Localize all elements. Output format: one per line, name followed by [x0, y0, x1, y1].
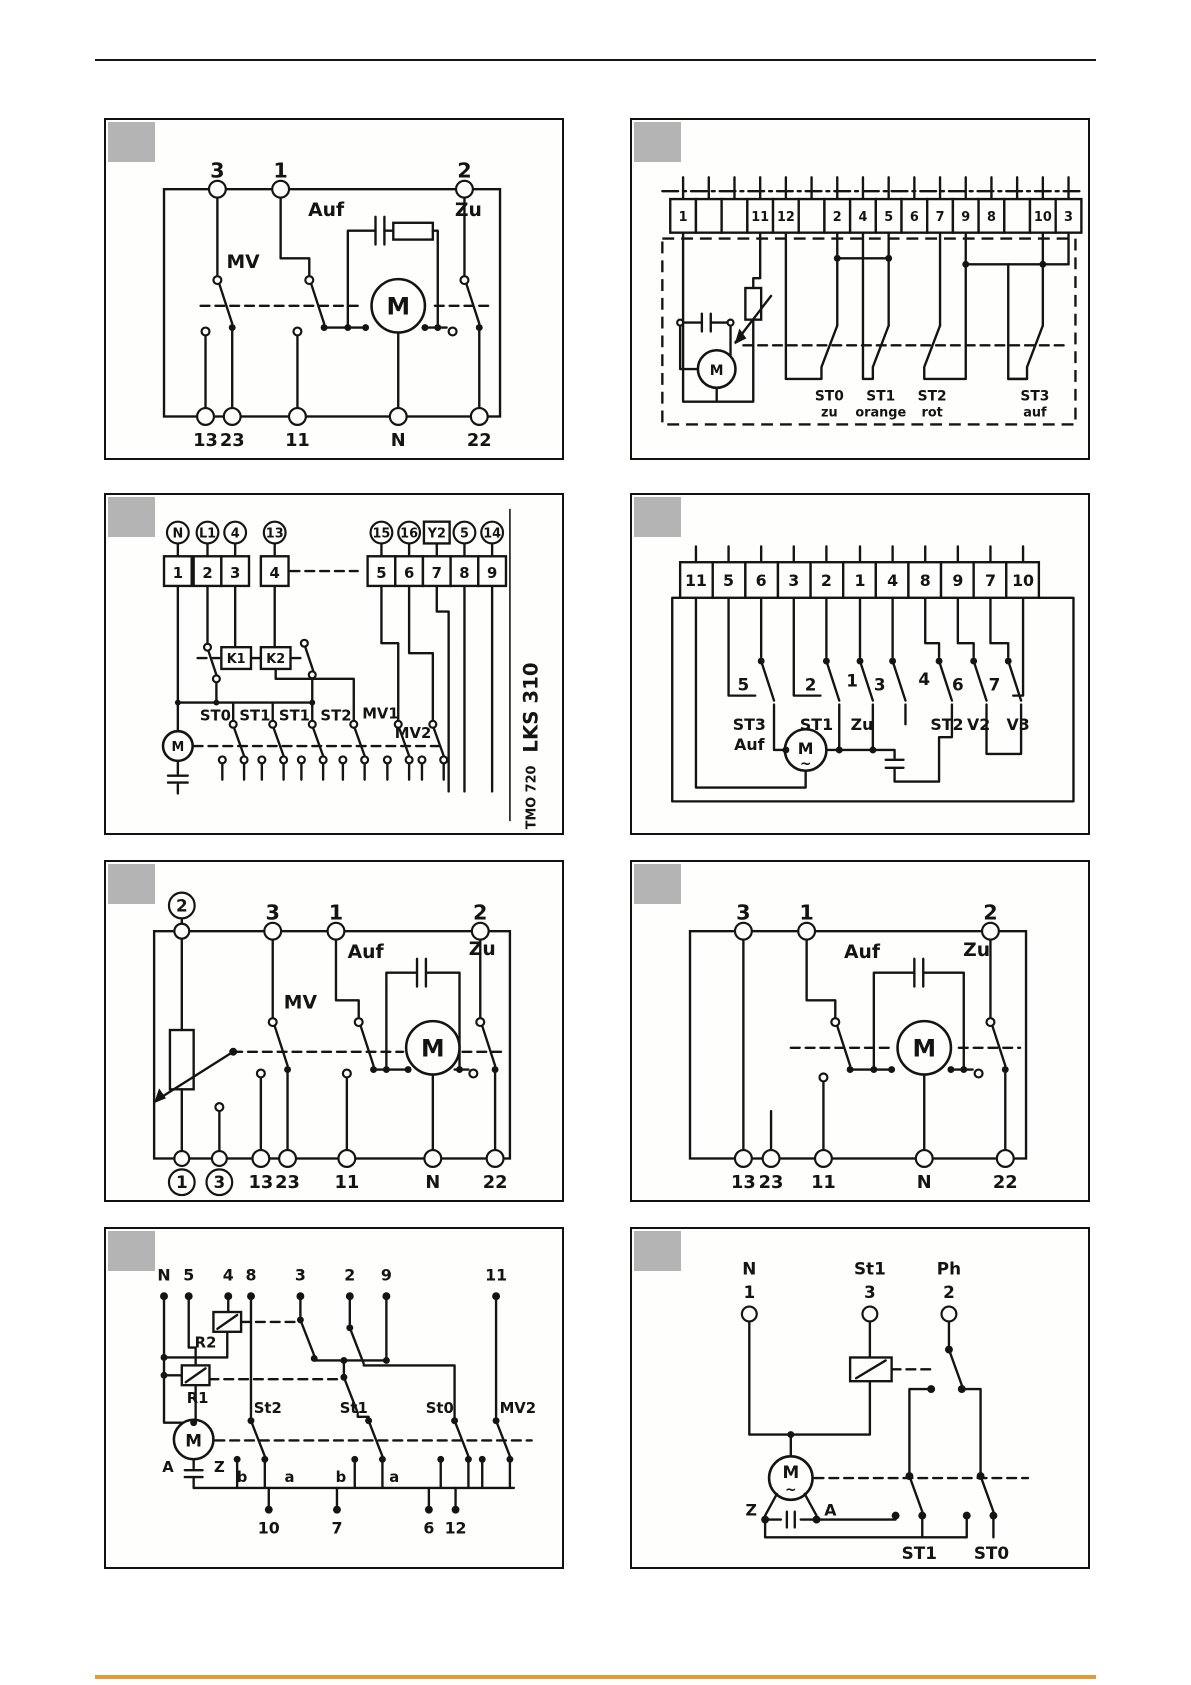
- term-name: St1: [854, 1258, 886, 1278]
- switch-label: MV: [284, 992, 318, 1013]
- cell-label: 3: [1064, 210, 1073, 225]
- cell-label: 6: [910, 210, 919, 225]
- switch-label: St1: [340, 1400, 368, 1417]
- side-label: LKS 310: [520, 662, 543, 752]
- switch-label: V3: [1007, 715, 1030, 734]
- switch-label: St0: [426, 1400, 454, 1417]
- relay-label: K1: [227, 652, 246, 667]
- term-label: 1: [176, 1172, 188, 1192]
- term-label: 3: [736, 900, 750, 924]
- cell-label: 4: [270, 565, 280, 582]
- term-label: N: [425, 1172, 440, 1193]
- cell-label: 9: [487, 565, 497, 582]
- wiring-diagram-7: N 5 4 8 3 2 9 11 R2 R1 St2 St1 St0 MV2 b…: [106, 1229, 562, 1567]
- contact-label: b: [336, 1469, 347, 1486]
- cell-label: 3: [788, 571, 799, 590]
- term-label: 16: [400, 526, 418, 541]
- term-label: 5: [460, 526, 469, 541]
- direction-label: Auf: [844, 942, 881, 963]
- wiring-diagram-1: 3 1 2 MV Auf Zu M 13 23 11 N 22: [106, 120, 562, 458]
- term-label: 3: [295, 1265, 306, 1284]
- term-label: 3: [265, 900, 279, 924]
- term-label: 23: [220, 430, 245, 451]
- motor-terminal-label: Z: [746, 1501, 757, 1520]
- motor-label: M: [710, 363, 724, 379]
- term-label: 4: [231, 526, 240, 541]
- term-label: 12: [445, 1518, 467, 1537]
- switch-number: 4: [918, 669, 930, 689]
- term-label: 5: [183, 1265, 194, 1284]
- side-label: TMO 720: [525, 766, 540, 830]
- motor-label: M: [171, 740, 184, 755]
- term-label: 1: [273, 158, 287, 182]
- contact-label: a: [285, 1469, 295, 1486]
- cell-label: 12: [777, 210, 795, 225]
- switch-label: ST0: [200, 707, 231, 724]
- switch-number: 2: [805, 675, 817, 695]
- motor-label: M: [782, 1462, 799, 1482]
- cell-label: 10: [1034, 210, 1052, 225]
- contact-label: a: [389, 1469, 399, 1486]
- switch-label: MV: [226, 252, 260, 273]
- cell-label: 11: [685, 571, 707, 590]
- switch-label: MV2: [500, 1400, 537, 1417]
- diagram-panel-5: 2 3 1 2 MV Auf Zu M 1 3 13 23 11 N 22: [104, 860, 564, 1202]
- term-label: 4: [223, 1265, 234, 1284]
- cell-label: 9: [952, 571, 963, 590]
- diagram-panel-6: 3 1 2 Auf Zu M 13 23 11 N 22: [630, 860, 1090, 1202]
- term-number: 2: [943, 1282, 955, 1302]
- switch-color-label: rot: [922, 405, 943, 420]
- switch-label: ST1: [239, 707, 270, 724]
- motor-label: M: [185, 1430, 202, 1450]
- motor-wave: ~: [800, 756, 812, 772]
- switch-label: MV2: [395, 725, 432, 742]
- motor-terminal-label: A: [824, 1501, 837, 1520]
- switch-number: 6: [952, 675, 964, 695]
- direction-label: Zu: [455, 200, 482, 221]
- switch-label: ST1: [800, 715, 833, 734]
- term-label: 13: [193, 430, 218, 451]
- cell-label: 8: [920, 571, 931, 590]
- wiring-diagram-8: N 1 St1 3 Ph 2 M ~ Z A ST1 ST0: [632, 1229, 1088, 1567]
- motor-label: M: [421, 1035, 445, 1063]
- term-label: 2: [457, 158, 471, 182]
- cell-label: 6: [404, 565, 414, 582]
- term-label: 22: [993, 1172, 1018, 1193]
- diagram-panel-1: 3 1 2 MV Auf Zu M 13 23 11 N 22: [104, 118, 564, 460]
- term-label: 3: [214, 1172, 226, 1192]
- cell-label: 7: [432, 565, 442, 582]
- cell-label: 4: [887, 571, 898, 590]
- switch-number: 1: [846, 671, 858, 691]
- wiring-diagram-4: 11 5 6 3 2 1 4 8 9 7 10 5 2 1 3 4 6 7 ST…: [632, 495, 1088, 833]
- switch-label: ST1: [279, 707, 310, 724]
- switch-color-label: auf: [1023, 405, 1047, 420]
- cell-label: 3: [230, 565, 240, 582]
- direction-label: Zu: [469, 939, 496, 960]
- cell-label: 8: [987, 210, 996, 225]
- cell-label: 2: [833, 210, 842, 225]
- switch-color-label: zu: [821, 405, 838, 420]
- term-label: N: [391, 430, 406, 451]
- switch-label: ST1: [902, 1543, 937, 1563]
- switch-number: 7: [989, 675, 1001, 695]
- direction-label: Zu: [963, 940, 990, 961]
- term-number: 1: [743, 1282, 755, 1302]
- term-label: 22: [467, 430, 492, 451]
- term-label: N: [157, 1265, 170, 1284]
- cell-label: 1: [679, 210, 688, 225]
- cell-label: 2: [821, 571, 832, 590]
- cell-label: 7: [936, 210, 945, 225]
- direction-label: Auf: [308, 200, 345, 221]
- term-label: 11: [485, 1265, 507, 1284]
- term-label: 11: [334, 1172, 359, 1193]
- cell-label: 5: [723, 571, 734, 590]
- motor-label: M: [386, 293, 410, 321]
- term-label: 1: [329, 900, 343, 924]
- motor-label: M: [912, 1035, 936, 1063]
- term-label: 8: [245, 1265, 256, 1284]
- term-label: 2: [983, 900, 997, 924]
- term-label: N: [172, 526, 183, 541]
- term-label: 23: [759, 1172, 784, 1193]
- cell-label: 5: [884, 210, 893, 225]
- cell-label: 1: [855, 571, 866, 590]
- switch-label: MV1: [362, 705, 399, 722]
- term-label: 2: [473, 900, 487, 924]
- cell-label: 9: [961, 210, 970, 225]
- term-label: L1: [199, 526, 216, 541]
- motor-terminal-label: A: [162, 1459, 174, 1476]
- page-top-rule: [95, 59, 1096, 61]
- relay-label: R2: [195, 1335, 217, 1352]
- term-label: 10: [258, 1518, 280, 1537]
- switch-label: Zu: [851, 715, 874, 734]
- term-label: 15: [373, 526, 391, 541]
- switch-label: ST3: [733, 715, 766, 734]
- term-label: 7: [331, 1518, 342, 1537]
- term-label: 13: [248, 1172, 273, 1193]
- diagram-panel-2: 1 11 12 2 4 5 6 7 9 8 10 3 M ST0 zu ST1 …: [630, 118, 1090, 460]
- switch-number: 5: [738, 675, 750, 695]
- wiring-diagram-5: 2 3 1 2 MV Auf Zu M 1 3 13 23 11 N 22: [106, 862, 562, 1200]
- term-label: 23: [275, 1172, 300, 1193]
- term-label: N: [917, 1172, 932, 1193]
- cell-label: 1: [173, 565, 183, 582]
- term-label: 11: [811, 1172, 836, 1193]
- term-label: 9: [381, 1265, 392, 1284]
- cell-label: 2: [202, 565, 212, 582]
- switch-label: ST2: [918, 389, 947, 405]
- term-label: 1: [799, 900, 813, 924]
- cell-label: 6: [756, 571, 767, 590]
- cell-label: 5: [376, 565, 386, 582]
- term-label: 2: [344, 1265, 355, 1284]
- direction-label: Auf: [348, 942, 385, 963]
- motor-terminal-label: Z: [214, 1459, 225, 1476]
- switch-label: V2: [967, 715, 990, 734]
- switch-number: 3: [874, 675, 886, 695]
- term-label: 13: [731, 1172, 756, 1193]
- page-bottom-accent-rule: [95, 1675, 1096, 1679]
- wiring-diagram-6: 3 1 2 Auf Zu M 13 23 11 N 22: [632, 862, 1088, 1200]
- cell-label: 8: [459, 565, 469, 582]
- term-name: Ph: [937, 1258, 961, 1278]
- switch-label: ST3: [1020, 389, 1049, 405]
- term-label: 13: [266, 526, 284, 541]
- relay-label: R1: [187, 1390, 209, 1407]
- cell-label: 11: [751, 210, 769, 225]
- relay-label: K2: [266, 652, 285, 667]
- motor-wave: ~: [785, 1482, 797, 1498]
- cell-label: 10: [1012, 571, 1034, 590]
- cell-label: 4: [858, 210, 867, 225]
- term-label: 22: [483, 1172, 508, 1193]
- diagram-panel-4: 11 5 6 3 2 1 4 8 9 7 10 5 2 1 3 4 6 7 ST…: [630, 493, 1090, 835]
- switch-label: ST1: [866, 389, 895, 405]
- term-label: 3: [210, 158, 224, 182]
- wiring-diagram-2: 1 11 12 2 4 5 6 7 9 8 10 3 M ST0 zu ST1 …: [632, 120, 1088, 458]
- wiring-diagram-3: N L1 4 13 15 16 Y2 5 14 1 2 3 4 5 6 7 8 …: [106, 495, 562, 833]
- switch-label: Auf: [734, 735, 765, 754]
- term-number: 3: [864, 1282, 876, 1302]
- switch-label: St2: [254, 1400, 282, 1417]
- contact-label: b: [237, 1469, 248, 1486]
- switch-label: ST2: [930, 715, 963, 734]
- term-label: Y2: [427, 526, 446, 541]
- switch-label: ST0: [815, 389, 844, 405]
- cell-label: 7: [985, 571, 996, 590]
- term-name: N: [742, 1258, 756, 1278]
- term-label: 2: [176, 895, 188, 915]
- term-label: 14: [483, 526, 501, 541]
- switch-color-label: orange: [855, 405, 906, 420]
- switch-label: ST2: [320, 707, 351, 724]
- term-label: 11: [285, 430, 310, 451]
- term-label: 6: [423, 1518, 434, 1537]
- diagram-panel-8: N 1 St1 3 Ph 2 M ~ Z A ST1 ST0: [630, 1227, 1090, 1569]
- diagram-panel-7: N 5 4 8 3 2 9 11 R2 R1 St2 St1 St0 MV2 b…: [104, 1227, 564, 1569]
- switch-label: ST0: [974, 1543, 1009, 1563]
- diagram-panel-3: N L1 4 13 15 16 Y2 5 14 1 2 3 4 5 6 7 8 …: [104, 493, 564, 835]
